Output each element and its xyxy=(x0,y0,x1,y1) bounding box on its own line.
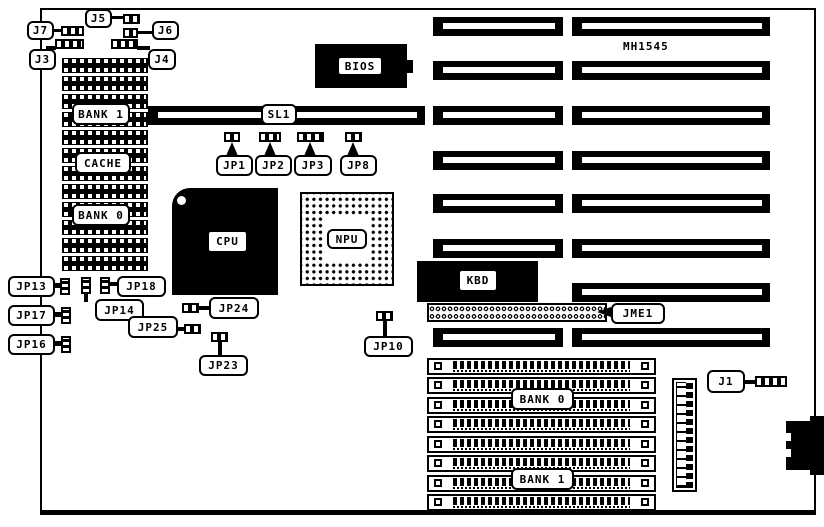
connector-j4 xyxy=(111,39,138,49)
bios-label: BIOS xyxy=(337,56,383,76)
jp17-pointer xyxy=(54,312,62,317)
j1-label: J1 xyxy=(707,370,745,393)
connector-j1 xyxy=(755,376,787,387)
jp2-label: JP2 xyxy=(255,155,292,176)
isa-slot xyxy=(572,328,770,347)
jp2-pointer xyxy=(264,142,276,156)
jme1-label: JME1 xyxy=(611,303,665,324)
jme1-pointer xyxy=(597,307,611,317)
isa-slot xyxy=(572,151,770,170)
jp23-pointer xyxy=(218,341,222,356)
jp8-label: JP8 xyxy=(340,155,377,176)
din-notch xyxy=(784,449,791,457)
isa-slot xyxy=(433,194,563,213)
jp8-pointer xyxy=(347,142,359,156)
cpu-label: CPU xyxy=(209,232,246,251)
jumper-jp2 xyxy=(259,132,281,142)
dip-chip-row xyxy=(62,256,148,271)
j7-label: J7 xyxy=(27,21,54,40)
jp1-label: JP1 xyxy=(216,155,253,176)
jumper-jp17 xyxy=(61,307,71,324)
jp10-label: JP10 xyxy=(364,336,413,357)
jp13-pointer xyxy=(54,283,61,288)
power-connector xyxy=(672,378,697,492)
simm-bank1-label: BANK 1 xyxy=(511,468,574,490)
connector-j3 xyxy=(55,39,84,49)
jp23-label: JP23 xyxy=(199,355,248,376)
npu-label: NPU xyxy=(327,229,367,249)
keyboard-din-connector xyxy=(810,416,824,475)
dip-chip-row xyxy=(62,76,148,91)
jp13-label: JP13 xyxy=(8,276,55,297)
j4-label: J4 xyxy=(148,49,176,70)
kbd-label: KBD xyxy=(460,271,496,290)
isa-slot xyxy=(572,61,770,80)
jumper-jp16 xyxy=(61,336,71,353)
power-connector-pins-right xyxy=(686,382,693,488)
jp16-label: JP16 xyxy=(8,334,55,355)
isa-slot xyxy=(433,151,563,170)
npu-socket-center: NPU xyxy=(324,216,370,262)
isa-slot xyxy=(572,194,770,213)
jp17-label: JP17 xyxy=(8,305,55,326)
bios-chip-tab xyxy=(407,60,413,73)
dip-chip-row xyxy=(62,130,148,145)
board-model-label: MH1545 xyxy=(623,40,669,53)
jp25-label: JP25 xyxy=(128,316,178,338)
j4-pointer xyxy=(137,46,150,50)
isa-slot xyxy=(433,17,563,36)
npu-socket: NPU xyxy=(300,192,394,286)
sl1-label: SL1 xyxy=(261,104,297,125)
jp3-label: JP3 xyxy=(294,155,332,176)
isa-slot xyxy=(572,283,770,302)
isa-slot xyxy=(433,61,563,80)
jumper-jp3 xyxy=(297,132,324,142)
isa-slot xyxy=(433,328,563,347)
simm-socket xyxy=(427,494,656,511)
simm-socket xyxy=(427,416,656,433)
simm-socket xyxy=(427,358,656,375)
din-notch xyxy=(784,433,791,441)
connector-j7 xyxy=(61,26,84,36)
connector-j5 xyxy=(123,14,140,24)
j7-pointer xyxy=(53,29,62,32)
isa-slot xyxy=(572,17,770,36)
dip-chip-row xyxy=(62,238,148,253)
simm-socket xyxy=(427,436,656,453)
j5-pointer xyxy=(111,16,124,19)
dip-bank0-label: BANK 0 xyxy=(72,204,130,226)
cpu-pin1-dot xyxy=(177,196,186,205)
j3-label: J3 xyxy=(29,49,56,70)
j5-label: J5 xyxy=(85,9,112,28)
jp14-pointer xyxy=(84,293,88,302)
jumper-jp25 xyxy=(184,324,201,334)
dip-chip-row xyxy=(62,58,148,73)
jp18-label: JP18 xyxy=(117,276,166,297)
jumper-jp13 xyxy=(60,278,70,295)
jumper-jp14 xyxy=(81,277,91,294)
motherboard-diagram: MH1545 BANK 1 CACHE BANK 0 J5 J7 J6 J3 J… xyxy=(0,0,824,527)
cache-label: CACHE xyxy=(75,152,131,174)
isa-slot xyxy=(572,106,770,125)
isa-slot xyxy=(572,239,770,258)
jp3-pointer xyxy=(304,142,316,156)
isa-slot xyxy=(433,106,563,125)
simm-bank0-label: BANK 0 xyxy=(511,388,574,410)
isa-slot xyxy=(433,239,563,258)
j6-pointer xyxy=(136,31,153,34)
jumper-jp1 xyxy=(224,132,240,142)
keyboard-din-connector-body xyxy=(786,421,812,470)
dip-chip-row xyxy=(62,184,148,199)
jp24-label: JP24 xyxy=(209,297,259,319)
j6-label: J6 xyxy=(152,21,179,40)
jp1-pointer xyxy=(226,142,238,156)
jp16-pointer xyxy=(54,341,62,346)
jme1-connector xyxy=(427,303,607,322)
jumper-jp24 xyxy=(182,303,199,313)
jp10-pointer xyxy=(383,320,387,337)
dip-bank1-label: BANK 1 xyxy=(72,103,130,125)
jumper-jp8 xyxy=(345,132,362,142)
